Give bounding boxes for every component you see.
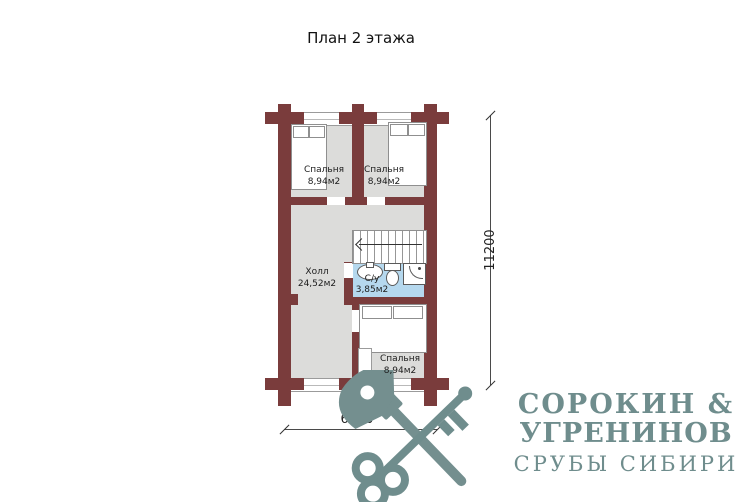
pillow <box>309 126 325 138</box>
room-area: 8,94м2 <box>384 366 417 376</box>
logo-line-2: УГРЕНИНОВ <box>502 419 750 449</box>
room-area: 8,94м2 <box>368 177 401 187</box>
wall-tie-stub-left <box>290 294 298 305</box>
stairs-direction-line <box>359 244 422 245</box>
room-label-hall: Холл 24,52м2 <box>287 266 347 290</box>
door-opening-bedroom-left <box>327 197 345 205</box>
pillow <box>362 306 392 319</box>
pillow <box>390 124 408 136</box>
room-name: Холл <box>305 267 328 277</box>
room-name: Спальня <box>304 165 344 175</box>
log-cross-bottom-left-stub <box>265 378 304 390</box>
room-name: С/у <box>365 274 380 284</box>
dimension-label-height: 11200 <box>483 216 497 284</box>
logo-wordmark: СОРОКИН & УГРЕНИНОВ СРУБЫ СИБИРИ <box>502 390 750 478</box>
room-label-bedroom-top-left: Спальня 8,94м2 <box>294 164 354 188</box>
room-area: 3,85м2 <box>356 285 389 295</box>
room-label-bathroom: С/у 3,85м2 <box>344 274 400 296</box>
pillow <box>393 306 423 319</box>
log-cross-top-left <box>278 104 291 150</box>
floor-plan-page: План 2 этажа <box>0 0 753 502</box>
room-area: 8,94м2 <box>308 177 341 187</box>
log-cross-top-left-stub <box>265 112 304 124</box>
page-title: План 2 этажа <box>261 29 461 47</box>
door-opening-bedroom-right <box>367 197 385 205</box>
stairs-direction-arrow-icon <box>355 238 368 251</box>
room-label-bedroom-bottom: Спальня 8,94м2 <box>370 353 430 377</box>
wall-left <box>278 112 291 390</box>
shower-icon <box>403 263 426 285</box>
log-cross-top-mid-stub <box>339 112 377 124</box>
room-name: Спальня <box>380 354 420 364</box>
wall-bedrooms-hall <box>291 197 425 205</box>
shower-head-dot <box>418 267 421 270</box>
staircase <box>352 230 427 264</box>
logo-line-3: СРУБЫ СИБИРИ <box>502 451 750 478</box>
axe-and-key-icon <box>332 370 507 502</box>
pillow <box>293 126 309 138</box>
room-label-bedroom-top-right: Спальня 8,94м2 <box>354 164 414 188</box>
sink-tap-icon <box>366 262 374 268</box>
room-area: 24,52м2 <box>298 279 336 289</box>
pillow <box>408 124 425 136</box>
room-name: Спальня <box>364 165 404 175</box>
logo-line-1: СОРОКИН & <box>502 390 750 419</box>
